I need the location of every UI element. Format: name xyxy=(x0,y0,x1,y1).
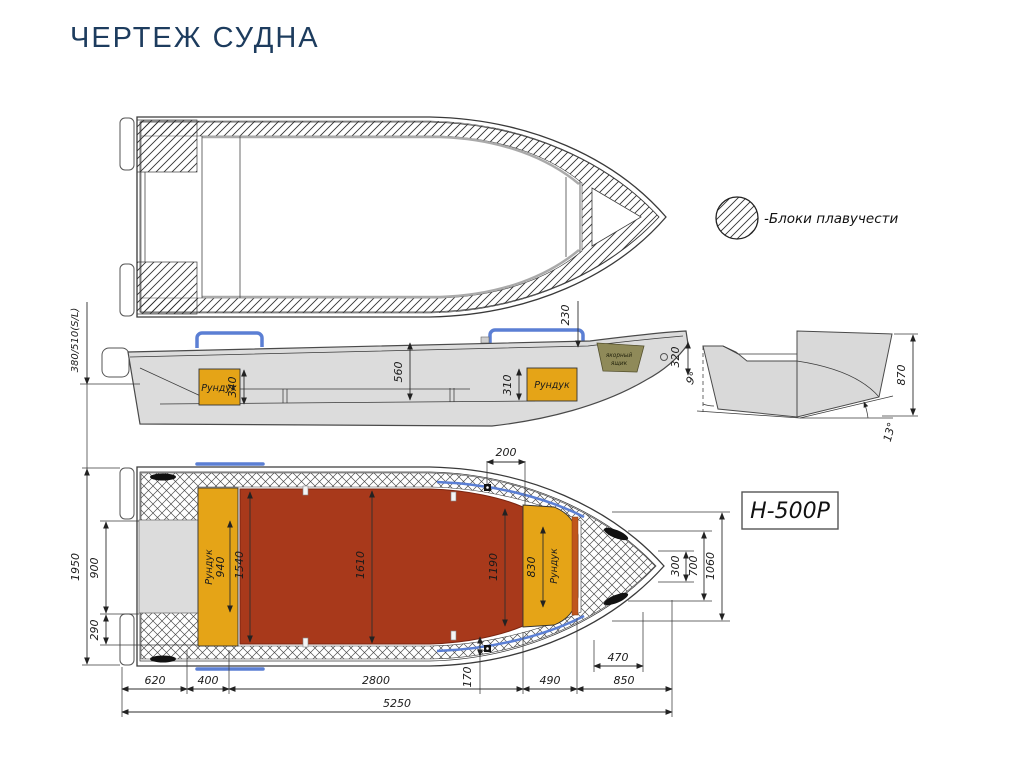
dim-400: 400 xyxy=(198,674,219,687)
stern-plate-bottom xyxy=(120,264,134,316)
dim-200: 200 xyxy=(496,446,517,459)
dim-290: 290 xyxy=(88,620,101,641)
section-port-panel xyxy=(703,346,797,417)
anchor-box-label-2: ящик xyxy=(611,361,628,367)
dim-700: 700 xyxy=(687,556,700,577)
stern-plate-bottom xyxy=(120,614,134,665)
blueprint-canvas: -Блоки плавучести Рундук Рундук якорный … xyxy=(0,0,1015,764)
grab-rail-aft xyxy=(197,333,262,348)
dim-320: 320 xyxy=(669,347,682,368)
dim-1060: 1060 xyxy=(704,552,717,580)
side-view-drawing: Рундук Рундук якорный ящик 340 560 310 2… xyxy=(70,301,688,470)
drawing-page: ЧЕРТЕЖ СУДНА xyxy=(0,0,1015,764)
stern-plate-top xyxy=(120,118,134,170)
anchor-box-label-1: якорный xyxy=(606,353,633,359)
stern-handle xyxy=(102,348,129,377)
dim-310: 310 xyxy=(501,375,514,396)
deck-fitting xyxy=(481,337,489,343)
floor-clip xyxy=(451,631,456,640)
dim-940: 940 xyxy=(214,557,227,578)
section-view-drawing: 9° 13° 870 xyxy=(683,331,918,443)
top-view-drawing xyxy=(120,117,666,317)
bow-locker-lid-edge xyxy=(572,517,578,615)
dim-1190: 1190 xyxy=(487,553,500,581)
dim-angle-9: 9° xyxy=(683,370,701,387)
cockpit-floor xyxy=(240,489,523,644)
dim-transom-height: 380/510(S/L) xyxy=(70,308,81,373)
plan-view-drawing: Рундук Рундук 940 1540 1610 1190 830 200 xyxy=(69,446,730,717)
stern-buoyancy-block-top xyxy=(137,120,197,172)
dim-1540: 1540 xyxy=(233,551,246,579)
dim-470: 470 xyxy=(608,651,629,664)
bow-fitting-top-hole xyxy=(486,486,489,489)
model-code: Н-500Р xyxy=(750,499,830,524)
dim-5250: 5250 xyxy=(383,697,411,710)
buoyancy-hatch-swatch xyxy=(716,197,758,239)
dim-620: 620 xyxy=(145,674,166,687)
dim-1610: 1610 xyxy=(354,551,367,579)
cleat-aft-bottom xyxy=(150,656,176,663)
floor-clip xyxy=(451,492,456,501)
dim-900: 900 xyxy=(88,558,101,579)
section-starboard-panel xyxy=(797,331,892,417)
model-plate: Н-500Р xyxy=(742,492,838,529)
dim-490: 490 xyxy=(540,674,561,687)
bow-locker-label: Рундук xyxy=(549,548,560,584)
dim-230: 230 xyxy=(559,305,572,326)
angle-arc-13 xyxy=(864,402,868,418)
cleat-aft-top xyxy=(150,474,176,481)
stern-plate-top xyxy=(120,468,134,519)
dim-340: 340 xyxy=(226,377,239,398)
dim-560: 560 xyxy=(392,362,405,383)
dim-830: 830 xyxy=(525,557,538,578)
legend: -Блоки плавучести xyxy=(716,197,898,239)
floor-clip xyxy=(303,486,308,495)
dim-angle-13: 13° xyxy=(881,421,899,443)
dim-1950: 1950 xyxy=(69,553,82,581)
stern-buoyancy-block-bottom xyxy=(137,262,197,314)
dim-2800: 2800 xyxy=(362,674,390,687)
dim-170: 170 xyxy=(461,667,474,688)
legend-label: -Блоки плавучести xyxy=(764,211,898,227)
angle-arc-9 xyxy=(703,404,714,406)
dim-300: 300 xyxy=(669,556,682,577)
bow-fitting-bottom-hole xyxy=(486,647,489,650)
floor-clip xyxy=(303,638,308,647)
dim-850: 850 xyxy=(614,674,635,687)
dim-870: 870 xyxy=(895,365,908,386)
bow-locker-label: Рундук xyxy=(534,380,570,391)
transom-well xyxy=(139,520,198,613)
